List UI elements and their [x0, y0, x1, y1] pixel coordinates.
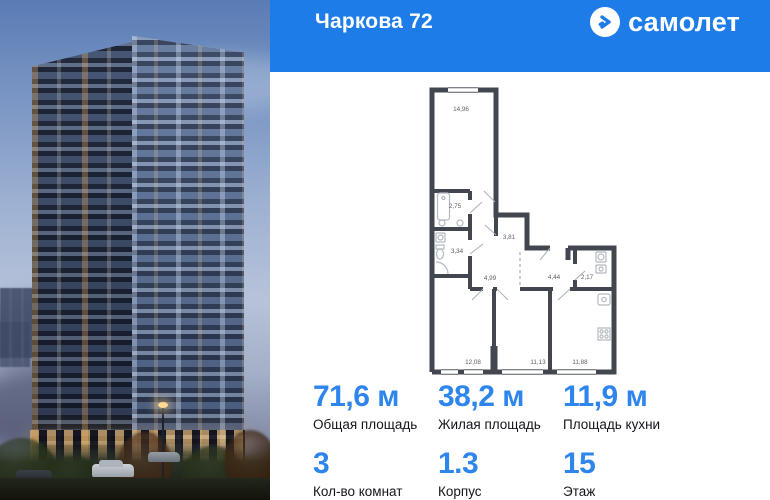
stat-total-area: 71,6 м Общая площадь — [313, 381, 438, 433]
distant-building-shape — [0, 322, 30, 367]
room-area-label: 4,44 — [548, 274, 561, 281]
car-shape — [148, 452, 180, 462]
stat-label: Жилая площадь — [438, 416, 563, 433]
room-area-label: 2,75 — [449, 203, 462, 210]
stat-value: 71,6 м — [313, 381, 438, 413]
stat-value: 3 — [313, 448, 438, 480]
stat-label: Площадь кухни — [563, 416, 688, 433]
project-title: Чаркова 72 — [315, 10, 433, 34]
windows — [441, 86, 596, 377]
brand-name: самолет — [628, 7, 740, 38]
room-area-label: 2,17 — [581, 274, 594, 281]
room-area-label: 12,08 — [465, 359, 481, 366]
stat-value: 11,9 м — [563, 381, 688, 413]
brand-logo[interactable]: самолет — [590, 7, 740, 38]
tower-left-face — [32, 42, 132, 488]
stat-building: 1.3 Корпус — [438, 448, 563, 500]
wall-stub — [491, 346, 498, 370]
tower-right-face — [132, 36, 244, 488]
floorplan-drawing: 14,96 2,75 3,34 3,81 4,99 4,44 2,17 12,0… — [428, 84, 618, 380]
listing-card[interactable]: Чаркова 72 самолет — [0, 0, 770, 500]
stat-floor: 15 Этаж — [563, 448, 688, 500]
stat-label: Этаж — [563, 483, 688, 500]
stat-label: Общая площадь — [313, 416, 438, 433]
stats-grid: 71,6 м Общая площадь 38,2 м Жилая площад… — [313, 381, 688, 500]
stat-kitchen-area: 11,9 м Площадь кухни — [563, 381, 688, 433]
building-photo — [0, 0, 270, 500]
stat-label: Кол-во комнат — [313, 483, 438, 500]
card-body: Чаркова 72 самолет — [270, 0, 770, 500]
stat-value: 38,2 м — [438, 381, 563, 413]
street — [0, 478, 270, 500]
room-area-label: 3,81 — [503, 234, 516, 241]
stat-value: 1.3 — [438, 448, 563, 480]
room-area-label: 3,34 — [451, 248, 464, 255]
room-area-label: 14,96 — [453, 106, 469, 113]
room-area-label: 11,88 — [572, 359, 588, 366]
room-area-label: 4,99 — [484, 275, 497, 282]
interior-walls — [432, 191, 614, 372]
car-shape — [92, 464, 134, 477]
stat-rooms-count: 3 Кол-во комнат — [313, 448, 438, 500]
stat-living-area: 38,2 м Жилая площадь — [438, 381, 563, 433]
brand-arrow-icon — [590, 7, 620, 37]
floorplan: 14,96 2,75 3,34 3,81 4,99 4,44 2,17 12,0… — [428, 84, 618, 385]
street-lamp-shape — [162, 406, 164, 478]
card-header: Чаркова 72 самолет — [270, 0, 770, 72]
stat-value: 15 — [563, 448, 688, 480]
stat-label: Корпус — [438, 483, 563, 500]
room-area-label: 11,13 — [530, 359, 546, 366]
